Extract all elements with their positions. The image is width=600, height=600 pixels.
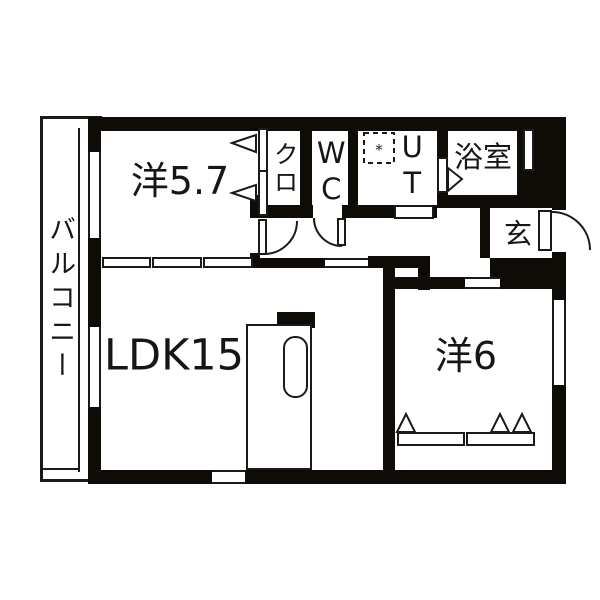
sliding-door-panel bbox=[102, 257, 151, 268]
bath-folding-door-panel bbox=[437, 157, 448, 193]
room-label-ldk: LDK15 bbox=[104, 333, 244, 378]
room-label-western-6: 洋6 bbox=[435, 337, 497, 377]
folding-door-triangle-icon bbox=[491, 414, 509, 432]
room-label-balcony: バルコニー bbox=[45, 215, 73, 385]
wall-entrance-bottom bbox=[490, 258, 552, 278]
closet-folding-door-panel bbox=[258, 128, 268, 216]
room-label-western-5-7: 洋5.7 bbox=[131, 162, 229, 202]
west6-closet-door-panel bbox=[397, 432, 465, 446]
balcony-inner-line bbox=[78, 128, 80, 472]
folding-door-triangle-icon bbox=[513, 414, 531, 432]
closet-folding-door-split bbox=[258, 170, 268, 172]
folding-door-triangle-icon bbox=[232, 135, 256, 152]
folding-door-triangle-icon bbox=[397, 414, 415, 432]
room-label-wc: WC bbox=[316, 136, 346, 208]
entrance-door-leaf bbox=[538, 210, 552, 251]
west6-closet-door-panel bbox=[466, 432, 535, 446]
wall-ldk-west6 bbox=[383, 268, 395, 470]
room-label-ut: UT bbox=[397, 130, 427, 202]
wall-hall-bottom bbox=[252, 258, 325, 268]
sliding-door-panel bbox=[152, 257, 202, 268]
window-west6 bbox=[552, 300, 566, 385]
room-label-closet: クロ bbox=[271, 141, 297, 197]
wall-bottom bbox=[88, 470, 566, 484]
wall-entrance-left bbox=[480, 208, 490, 258]
window-bottom-vent bbox=[212, 470, 245, 484]
washing-machine-icon bbox=[364, 133, 394, 163]
balcony-inner-line bbox=[43, 468, 80, 470]
window-room57 bbox=[88, 152, 101, 238]
window-ldk bbox=[88, 327, 101, 407]
ut-sliding-door-panel bbox=[394, 205, 434, 219]
washing-machine-mark: * bbox=[375, 141, 383, 159]
entrance-door-opening bbox=[552, 210, 566, 252]
wall-bath-bottom bbox=[437, 195, 552, 208]
room57-door-swing-arc bbox=[264, 221, 297, 254]
room57-door-leaf bbox=[258, 219, 267, 255]
wall-top bbox=[88, 117, 566, 131]
sliding-door-panel bbox=[203, 257, 253, 268]
west6-door-opening bbox=[465, 277, 500, 289]
room-label-entrance: 玄 bbox=[504, 219, 532, 248]
floor-plan: * バルコニー 洋5.7 クロ WC UT 浴室 玄 LDK15 洋6 bbox=[0, 0, 600, 600]
wc-door-leaf bbox=[337, 218, 346, 246]
pipe-shaft bbox=[523, 129, 534, 171]
kitchen-sink bbox=[283, 336, 308, 398]
room-label-bathroom: 浴室 bbox=[454, 142, 512, 172]
ldk-opening bbox=[325, 258, 368, 268]
